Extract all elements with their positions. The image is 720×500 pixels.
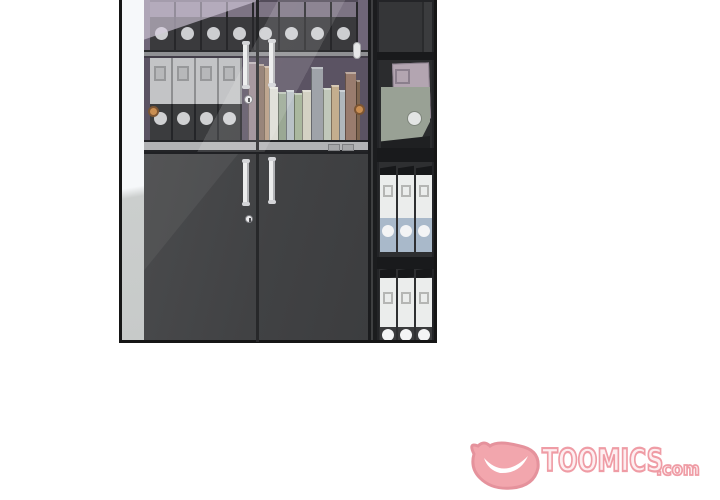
white-binder-band	[416, 327, 432, 340]
binder-label-window	[395, 69, 410, 84]
book	[269, 87, 278, 140]
binder-ring-hole	[181, 27, 194, 40]
right-shelf-column	[377, 0, 434, 340]
upper-left-door-handle	[243, 42, 249, 88]
white-binder-band	[380, 218, 396, 252]
gray-binder-band	[219, 104, 242, 140]
white-binder-band	[416, 218, 432, 252]
cabinet-side-frame	[368, 0, 377, 340]
hinge-plate	[328, 144, 340, 151]
gray-binder	[219, 58, 242, 140]
books-row	[248, 58, 360, 140]
top-shelf-binder-row	[150, 0, 358, 50]
binder-ring-hole	[382, 329, 394, 340]
white-binder-spine	[416, 278, 432, 327]
binder-label-window	[401, 292, 411, 304]
lower-right-door-handle	[269, 158, 275, 203]
top-shelf-binder	[228, 2, 254, 52]
gray-binder-band	[173, 104, 196, 140]
binder-finger-hole	[407, 111, 422, 126]
binder-ring-hole	[400, 225, 412, 237]
book	[286, 90, 294, 140]
book	[278, 92, 286, 140]
cabinet-lower-doors	[144, 152, 368, 340]
book	[323, 88, 331, 140]
gray-binder-band	[196, 104, 219, 140]
binder-label-window	[177, 66, 189, 81]
binder-label-window	[154, 66, 166, 81]
right-shelf-leaning-compartment	[379, 60, 432, 148]
binder-ring-hole	[418, 329, 430, 340]
binder-ring-hole	[207, 27, 220, 40]
compartment-side-panel	[424, 2, 432, 52]
shelf-board	[377, 52, 434, 60]
gray-binder-spine	[196, 58, 219, 104]
binder-label-window	[419, 292, 429, 304]
top-shelf-binder	[150, 2, 176, 52]
cabinet	[144, 0, 368, 340]
top-shelf-binder	[280, 2, 306, 52]
gray-binder-spine	[150, 58, 173, 104]
right-door-knob	[354, 104, 365, 115]
binder-ring-hole	[155, 27, 168, 40]
left-door-knob	[148, 106, 159, 117]
toomics-watermark: TOOMICS .com	[468, 436, 718, 496]
white-binder-compartment	[379, 269, 432, 340]
white-binder-band	[398, 218, 414, 252]
binder-ring-hole	[223, 112, 236, 125]
binder-label-window	[419, 185, 429, 197]
hinge-plate	[342, 144, 354, 151]
sage-binder	[381, 87, 430, 145]
top-shelf-binder	[202, 2, 228, 52]
binder-ring-hole	[285, 27, 298, 40]
comic-page: TOOMICS .com	[0, 0, 720, 500]
binder-ring-hole	[177, 112, 190, 125]
binder-label-window	[383, 185, 393, 197]
binder-ring-hole	[418, 225, 430, 237]
gray-binder-row	[150, 58, 242, 140]
book	[294, 93, 302, 140]
gray-binder	[150, 58, 173, 140]
gray-binder	[196, 58, 219, 140]
book	[302, 90, 311, 140]
binder-label-window	[383, 292, 393, 304]
binder-ring-hole	[311, 27, 324, 40]
book	[311, 67, 323, 140]
white-binder-spine	[398, 175, 414, 218]
upper-door-keyhole	[244, 95, 253, 104]
toomics-brand-text: TOOMICS	[542, 443, 663, 479]
binder-ring-hole	[233, 27, 246, 40]
lower-left-door-handle	[243, 160, 249, 205]
binder-ring-hole	[200, 112, 213, 125]
comic-panel	[119, 0, 437, 343]
gray-binder-spine	[173, 58, 196, 104]
gray-binder-spine	[219, 58, 242, 104]
toomics-domain-suffix: .com	[656, 459, 700, 480]
white-binder-band	[380, 327, 396, 340]
binder-ring-hole	[337, 27, 350, 40]
white-binder-compartment	[379, 162, 432, 257]
glass-door-seam	[256, 0, 259, 152]
binder-label-window	[223, 66, 235, 81]
glass-door-latch	[353, 42, 361, 59]
white-binder-band	[398, 327, 414, 340]
cabinet-glass-section	[144, 0, 368, 152]
upper-right-door-handle	[269, 40, 275, 86]
book	[331, 85, 339, 140]
right-shelf-empty-compartment	[379, 2, 432, 52]
top-shelf-binder	[306, 2, 332, 52]
shelf-board	[377, 148, 434, 162]
white-binder-spine	[398, 278, 414, 327]
top-shelf-binder	[176, 2, 202, 52]
gray-binder	[173, 58, 196, 140]
white-binder-spine	[416, 175, 432, 218]
binder-ring-hole	[400, 329, 412, 340]
binder-ring-hole	[382, 225, 394, 237]
white-binder-spine	[380, 278, 396, 327]
toomics-mascot-icon	[468, 438, 540, 492]
binder-label-window	[200, 66, 212, 81]
lower-door-seam	[256, 154, 259, 342]
shelf-board	[377, 257, 434, 269]
binder-label-window	[401, 185, 411, 197]
lower-door-keyhole	[245, 215, 253, 223]
white-binder-spine	[380, 175, 396, 218]
wall-strip	[122, 0, 144, 340]
